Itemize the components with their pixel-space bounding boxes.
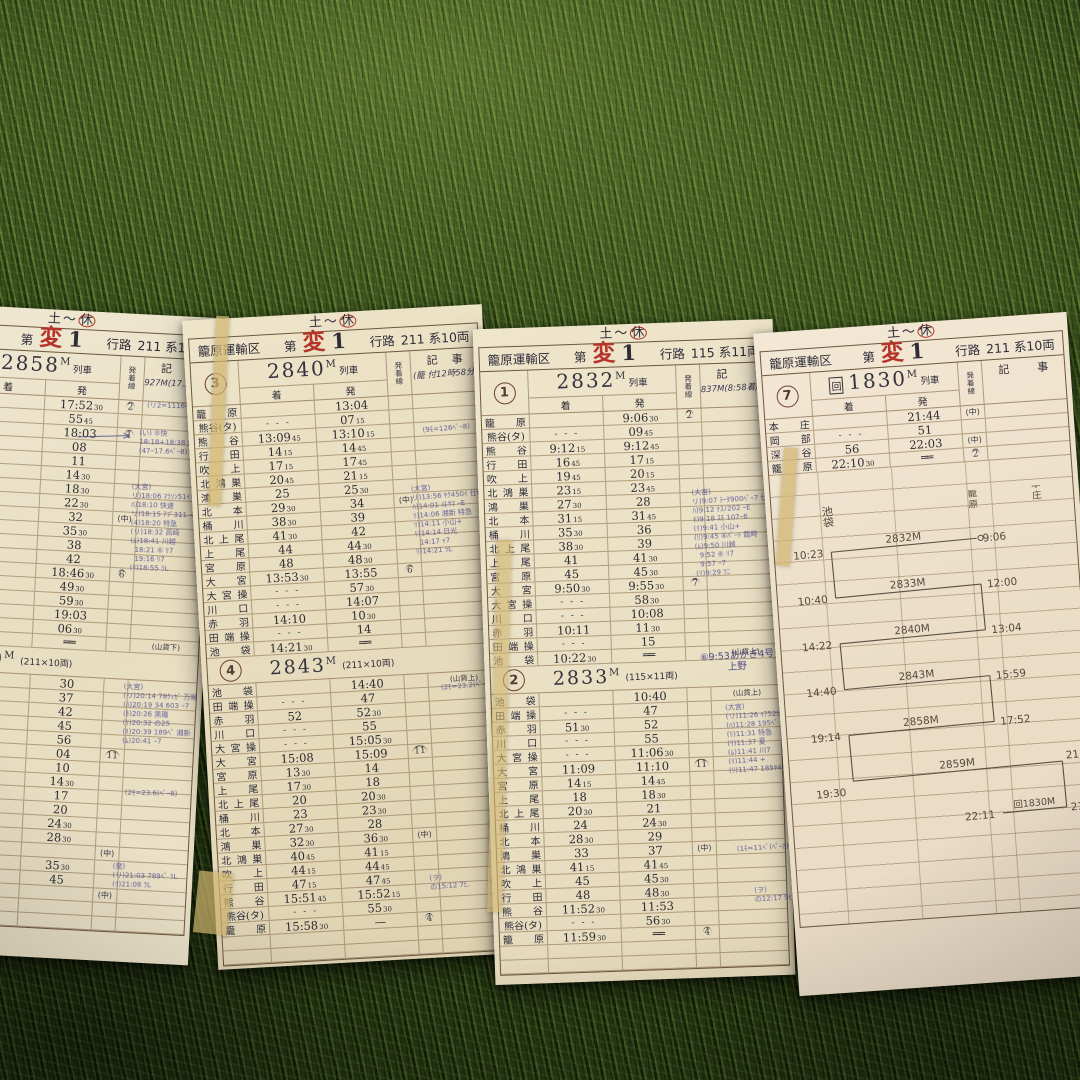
remark-cell (717, 853, 785, 868)
track-cell (695, 911, 719, 925)
departure-time-cell: ══ (612, 647, 686, 663)
departure-time-cell: 9:1245 (605, 437, 679, 453)
train-label: (211×10両) (20, 654, 73, 670)
arrival-time-cell: 3530 (534, 524, 608, 540)
hen-stamp: 変 (39, 330, 63, 347)
handwritten-note: (発) (リ)21:03 789ﾍﾟ ﾗL (ﾘ)21:08 ﾗL (112, 862, 178, 891)
track-cell (684, 604, 708, 618)
remark-cell (715, 797, 783, 812)
station-cell: 桶川 (486, 526, 534, 541)
dai-label: 第 (862, 346, 876, 366)
diagram-time: 13:04 (991, 621, 1023, 636)
koro-value: 115 系11両 (691, 340, 760, 361)
diagram-station-label: 庄 (1031, 489, 1042, 502)
track-cell (678, 422, 702, 436)
departure-time-cell (18, 912, 93, 929)
train-number: 2859M (0, 645, 15, 670)
arrive-col-header: 着 (0, 376, 46, 395)
departure-time-cell: 1445 (616, 772, 690, 788)
station-cell: 川口 (211, 725, 260, 741)
track-cell (92, 902, 117, 916)
track-cell (962, 419, 987, 434)
station-cell: 鴻巣 (497, 847, 545, 862)
station-cell: 桶川 (199, 517, 248, 533)
hen-stamp: 変 (592, 345, 616, 362)
departure-time-cell: 4830 (620, 884, 694, 900)
departure-time-cell: 11:53 (621, 898, 695, 914)
diagram-time: 9:06 (982, 530, 1007, 544)
station-cell: 行田 (498, 889, 546, 904)
train-number: 2843M (269, 654, 337, 680)
koro-label: 行路 (106, 333, 132, 353)
station-cell: 田端操 (205, 628, 254, 644)
station-cell: 桶川 (216, 809, 265, 825)
station-cell: 宮原 (213, 767, 262, 783)
departure-time-cell: 11:0630 (615, 744, 689, 760)
station-cell (500, 945, 548, 960)
depot-name: 籠原運輸区 (769, 349, 833, 372)
remark-cell (720, 923, 788, 938)
arrival-time-cell: - - - (540, 705, 614, 721)
duty-leg-number: 4 (219, 659, 242, 682)
remark-cell (708, 602, 776, 617)
arrival-time-cell (0, 392, 45, 409)
track-cell (107, 624, 132, 638)
diagram-time: 14:40 (806, 685, 837, 700)
depot-name: 籠原運輸区 (487, 348, 550, 369)
departure-time-cell: 11:10 (616, 758, 690, 774)
track-cell (106, 638, 131, 652)
track-cell: 6 (398, 563, 423, 577)
track-cell (679, 436, 703, 450)
track-cell (690, 771, 714, 785)
station-cell: 熊谷(タ) (482, 428, 530, 443)
station-cell: 籠原 (500, 931, 548, 946)
handwritten-note: (大宮) (リ)20:14 78ｸｨｶﾞ 万端 (ﾊ)20:19 34 603 … (122, 683, 198, 748)
arrival-time-cell: 24 (544, 817, 618, 833)
track-cell (99, 777, 124, 791)
diagram-time: 10:23 (793, 548, 824, 563)
photo-of-timetable-cards: 土～休 籠原運輸区 第 変 1 行路 211 系10両 2858M列車着発発着線… (0, 0, 1080, 1080)
arrival-time-cell: 45 (535, 566, 609, 582)
arrival-time-cell: 1415 (542, 775, 616, 791)
train-label: (211×10両) (342, 655, 395, 671)
station-cell: 北鴻巣 (497, 861, 545, 876)
track-cell (692, 813, 716, 827)
track-cell (401, 619, 426, 633)
station-cell: 熊谷 (483, 442, 531, 457)
track-cell: 2 (964, 447, 989, 462)
departure-time-cell (622, 940, 696, 956)
track-cell (680, 464, 704, 478)
train-label: 列車 (920, 372, 940, 387)
kyuu-circle-stamp: 休 (629, 326, 646, 340)
station-cell: 赤羽 (210, 711, 259, 727)
track-cell: 11 (690, 757, 714, 771)
station-cell: 池袋 (206, 642, 255, 658)
kyuu-circle-stamp: 休 (339, 314, 357, 328)
departure-time-cell: ══ (622, 926, 696, 942)
departure-time-cell: 9:0630 (604, 409, 678, 425)
track-cell (92, 916, 117, 930)
arrival-time-cell (549, 957, 623, 973)
handwritten-note: (大宮) リ)13:56 ﾔｸ450ｲ 仕6 ﾊ)14:01 斗ｻﾏ ｰE ﾘ)… (411, 480, 486, 557)
track-cell (392, 451, 417, 465)
departure-time-cell: 28 (607, 493, 681, 509)
departure-time-cell: 21 (617, 800, 691, 816)
duty-leg-number: 1 (493, 381, 516, 404)
dai-label: 第 (574, 346, 587, 365)
track-cell (109, 582, 134, 596)
diagram-time: 12:00 (987, 576, 1018, 591)
koro-value: 211 系10両 (400, 326, 470, 349)
station-cell: 北鴻巣 (484, 484, 532, 499)
station-cell (501, 959, 549, 974)
departure-time-cell: 10:08 (610, 605, 684, 621)
track-cell (118, 414, 143, 428)
station-cell: 吹上 (484, 470, 532, 485)
station-cell: 北鴻巣 (218, 851, 267, 867)
track-cell (389, 409, 414, 423)
departure-time-cell (345, 941, 420, 958)
train-number: 2840M (266, 355, 336, 383)
diagram-time: 14:22 (802, 640, 833, 655)
station-cell: 北上尾 (215, 795, 264, 811)
departure-time-cell: 4530 (620, 870, 694, 886)
track-cell (410, 786, 435, 800)
track-cell: (中) (413, 827, 438, 841)
remark-cell (709, 616, 777, 631)
track-cell (691, 799, 715, 813)
station-cell: 赤羽 (205, 614, 254, 630)
station-cell: 大宮 (212, 753, 261, 769)
departure-time-cell: 10:40 (613, 688, 687, 704)
track-cell (412, 813, 437, 827)
hen-stamp: 変 (880, 344, 904, 362)
departure-time-cell: 1830 (617, 786, 691, 802)
kyuu-circle-stamp: 休 (917, 324, 935, 338)
arrival-time-cell: 1945 (532, 468, 606, 484)
departure-time-cell: 4130 (608, 549, 682, 565)
handwritten-note: (ヲ) の12:17 9ﾋ. (754, 884, 795, 904)
track-cell (98, 791, 123, 805)
track-cell (405, 688, 430, 702)
arrival-time-cell: - - - (541, 747, 615, 763)
track-cell: (中) (93, 888, 118, 902)
track-cell (97, 804, 122, 818)
train-number: 2833M (553, 666, 620, 690)
deadhead-mark: 回 (829, 377, 844, 395)
arrival-time-cell (548, 943, 622, 959)
departure-time-cell: 1715 (605, 451, 679, 467)
diagram-station-label: 袋 (822, 515, 834, 530)
track-col-header: 発着線 (119, 356, 145, 400)
station-cell: 上尾 (214, 781, 263, 797)
arrival-time-cell: 11:5230 (547, 901, 621, 917)
departure-time-cell: 2430 (618, 814, 692, 830)
track-cell (685, 618, 709, 632)
track-cell (400, 591, 425, 605)
arrival-time-cell: 18 (543, 789, 617, 805)
track-cell (96, 832, 121, 846)
track-cell (691, 785, 715, 799)
track-cell (694, 869, 718, 883)
koro-label: 行路 (660, 343, 686, 363)
departure-time-cell: 2015 (606, 465, 680, 481)
track-cell (108, 610, 133, 624)
train-label: 列車 (628, 374, 647, 389)
diagram-time: 19:30 (816, 787, 847, 802)
track-cell (414, 841, 439, 855)
station-cell: 北本 (198, 503, 247, 519)
track-cell (390, 423, 415, 437)
station-cell: 鴻巣 (485, 498, 533, 513)
departure-time-cell: 37 (619, 842, 693, 858)
track-cell (694, 883, 718, 897)
track-cell (695, 897, 719, 911)
arrival-time-cell: 11:09 (542, 761, 616, 777)
track-cell (97, 818, 122, 832)
arrival-time-cell: 9:5030 (536, 580, 610, 596)
station-cell: 田端操 (209, 697, 258, 713)
koro-value: 211 系10両 (985, 334, 1055, 358)
track-cell: 2 (119, 400, 144, 414)
remark-cell (719, 909, 787, 924)
diagram-station-label: 籠 (967, 487, 978, 500)
diagram-time: 15:59 (995, 667, 1026, 682)
remark-cell: (山貨上) (711, 685, 779, 700)
station-cell: 鴻巣 (217, 837, 266, 853)
depot-name: 籠原運輸区 (197, 338, 260, 360)
departure-time-cell: 15 (611, 633, 685, 649)
station-cell: 行田 (483, 456, 531, 471)
departure-time-cell: 2345 (606, 479, 680, 495)
arrival-time-cell (539, 691, 613, 707)
departure-time-cell: 39 (608, 535, 682, 551)
station-cell: 池袋 (209, 683, 258, 699)
departure-time-cell: 47 (614, 702, 688, 718)
handwritten-note: (い) ⑤快 18:18+18:38 ﾂL (47ｰ17.6ﾍﾟｰ8) (139, 429, 196, 457)
train-number: 1830M (847, 365, 918, 394)
kyuu-circle-stamp: 休 (78, 314, 96, 328)
arrival-time-cell: 11:5930 (548, 929, 622, 945)
arrival-time-cell: 33 (545, 845, 619, 861)
station-cell: 北本 (216, 823, 265, 839)
track-cell: (中) (95, 846, 120, 860)
arrival-time-cell: 1645 (531, 454, 605, 470)
track-cell (409, 758, 434, 772)
track-col-header: 発着線 (676, 365, 701, 409)
arrival-time-cell: 2315 (532, 482, 606, 498)
train-label: 列車 (339, 362, 359, 377)
track-cell: 11 (100, 749, 125, 763)
station-cell: 宮原 (487, 568, 535, 583)
track-cell (688, 701, 712, 715)
track-cell (418, 925, 443, 939)
track-cell (393, 465, 418, 479)
handwritten-note: (2ﾓ=23.6(ﾍﾟｰ8) (125, 789, 178, 799)
diagram-time: 21:44 (1070, 799, 1080, 814)
track-cell (679, 450, 703, 464)
track-cell: 11 (408, 744, 433, 758)
track-cell (116, 456, 141, 470)
track-cell (100, 763, 125, 777)
station-cell: 川口 (204, 600, 253, 616)
arrival-time-cell: - - - (541, 733, 615, 749)
train-number: 2832M (556, 367, 626, 393)
track-cell: (中) (693, 841, 717, 855)
departure-time-cell: 4530 (609, 563, 683, 579)
timetable-card-kai1830: 土～休 籠原運輸区 第 変 1 行路 211 系10両 7回1830M列車着発発… (753, 312, 1080, 996)
departure-time-cell: 55 (615, 730, 689, 746)
station-cell: 熊谷(タ) (499, 917, 547, 932)
remark-cell (709, 630, 777, 645)
track-cell (407, 730, 432, 744)
masking-tape (193, 870, 233, 935)
duty-leg-number: 7 (775, 384, 798, 407)
station-cell: 大宮 (202, 572, 251, 588)
track-cell (406, 702, 431, 716)
station-cell: 籠原 (222, 921, 271, 937)
arrival-time-cell (530, 412, 604, 428)
koro-label: 行路 (369, 330, 395, 350)
track-cell (108, 596, 133, 610)
timetable: 7回1830M列車着発発着線記事本庄21:44(中)岡部- - -51深谷562… (761, 354, 1080, 928)
track-cell (411, 799, 436, 813)
station-cell: 北本 (485, 512, 533, 527)
departure-time-cell: 3145 (607, 507, 681, 523)
station-cell: 吹上 (498, 875, 546, 890)
train-label: (115×11両) (625, 668, 678, 683)
arrival-time-cell: 10:11 (537, 622, 611, 638)
arrival-time-cell: - - - (536, 608, 610, 624)
departure-time-cell: 5630 (621, 912, 695, 928)
station-cell (223, 935, 272, 951)
arrival-time-cell (271, 945, 346, 962)
arrival-time-cell: - - - (536, 594, 610, 610)
timetable-card-2840-2843: 土～休 籠原運輸区 第 変 1 行路 211 系10両 32840M列車着発発着… (182, 304, 518, 970)
track-cell (407, 716, 432, 730)
handwritten-arrow (77, 427, 138, 449)
departure-time-cell: 5830 (610, 591, 684, 607)
remark-cell (718, 867, 786, 882)
track-cell: (中) (963, 433, 988, 448)
track-cell (692, 827, 716, 841)
departure-time-cell: 1130 (611, 619, 685, 635)
koro-label: 行路 (954, 339, 980, 360)
depart-col-header: 発 (603, 393, 677, 411)
track-cell (687, 687, 711, 701)
track-cell (689, 743, 713, 757)
track-cell (414, 855, 439, 869)
arrival-time-cell: 2830 (544, 831, 618, 847)
station-cell: 宮原 (202, 558, 251, 574)
arrival-time-cell: - - - (537, 636, 611, 652)
track-cell: 7 (683, 576, 707, 590)
track-cell (404, 674, 429, 688)
track-cell: (中) (961, 405, 986, 420)
remark-cell (708, 588, 776, 603)
diagram-station-label: 原 (968, 499, 979, 511)
departure-time-cell: 36 (608, 521, 682, 537)
arrival-time-cell: - - - (547, 915, 621, 931)
station-cell: 大宮操 (203, 586, 252, 602)
remark-cell (116, 918, 185, 935)
remark-cell (715, 783, 783, 798)
track-cell (402, 633, 427, 647)
station-cell: 大宮操 (212, 739, 261, 755)
track-cell (688, 715, 712, 729)
diagram-time: 19:14 (810, 731, 842, 746)
remark-cell (716, 825, 784, 840)
arrival-time-cell: - - - (530, 426, 604, 442)
arrival-time-cell: 2030 (543, 803, 617, 819)
departure-time-cell: 4145 (619, 856, 693, 872)
arrival-time-cell: 41 (535, 552, 609, 568)
departure-time-cell: 52 (614, 716, 688, 732)
handwritten-note: ⑥9:53あかぎ4号 上野 (700, 648, 775, 674)
track-cell: 2 (678, 408, 702, 422)
track-cell (697, 953, 721, 967)
dai-label: 第 (283, 336, 297, 356)
track-cell (417, 897, 442, 911)
departure-time-cell (623, 954, 697, 970)
arrival-time-cell: 4115 (545, 859, 619, 875)
diagram-time: 21:12 (1065, 747, 1080, 762)
diagram-time: 17:52 (1000, 713, 1031, 728)
track-cell (693, 855, 717, 869)
remark-cell (721, 951, 789, 966)
station-cell: 上尾 (201, 545, 250, 561)
track-cell (419, 939, 444, 953)
track-col-header: 発着線 (386, 351, 412, 395)
track-cell (389, 395, 414, 409)
departure-time-cell: 29 (618, 828, 692, 844)
arrival-time-cell: 45 (546, 873, 620, 889)
track-cell: 4 (417, 911, 442, 925)
track-cell (685, 632, 709, 646)
timetable-card-2832-2833: 土～休 籠原運輸区 第 変 1 行路 115 系11両 12832M列車着発発着… (473, 319, 796, 985)
track-cell (684, 590, 708, 604)
remarks-col-header: 記事 (982, 355, 1065, 379)
track-cell (689, 729, 713, 743)
station-cell: 北上尾 (200, 531, 249, 547)
arrival-time-cell: 2730 (533, 496, 607, 512)
arrival-time-cell: 5130 (540, 719, 614, 735)
dai-label: 第 (20, 329, 33, 349)
track-cell: 4 (696, 925, 720, 939)
arrival-time-cell: 3830 (534, 538, 608, 554)
train-label: 列車 (73, 362, 93, 377)
remark-cell (720, 937, 788, 952)
station-cell: 鴻巣 (198, 489, 247, 505)
track-cell (410, 772, 435, 786)
arrival-time-cell: 9:1215 (531, 440, 605, 456)
remark-cell (716, 811, 784, 826)
duty-diagram-area: 池袋籠原本庄2832M9:0610:232833M10:4012:002840M… (769, 455, 1080, 927)
handwritten-note: (ヲ) の15:12 7ﾋ. (429, 871, 470, 892)
arrival-time-cell: 10:2230 (538, 650, 612, 666)
arrival-time-cell: 3115 (533, 510, 607, 526)
track-cell (400, 605, 425, 619)
hen-stamp: 変 (302, 334, 326, 351)
station-cell (223, 949, 272, 965)
track-cell (696, 939, 720, 953)
diagram-time: 10:40 (797, 594, 828, 609)
diagram-time: 22:11 (964, 809, 995, 824)
track-cell (391, 437, 416, 451)
arrival-time-cell: 48 (546, 887, 620, 903)
